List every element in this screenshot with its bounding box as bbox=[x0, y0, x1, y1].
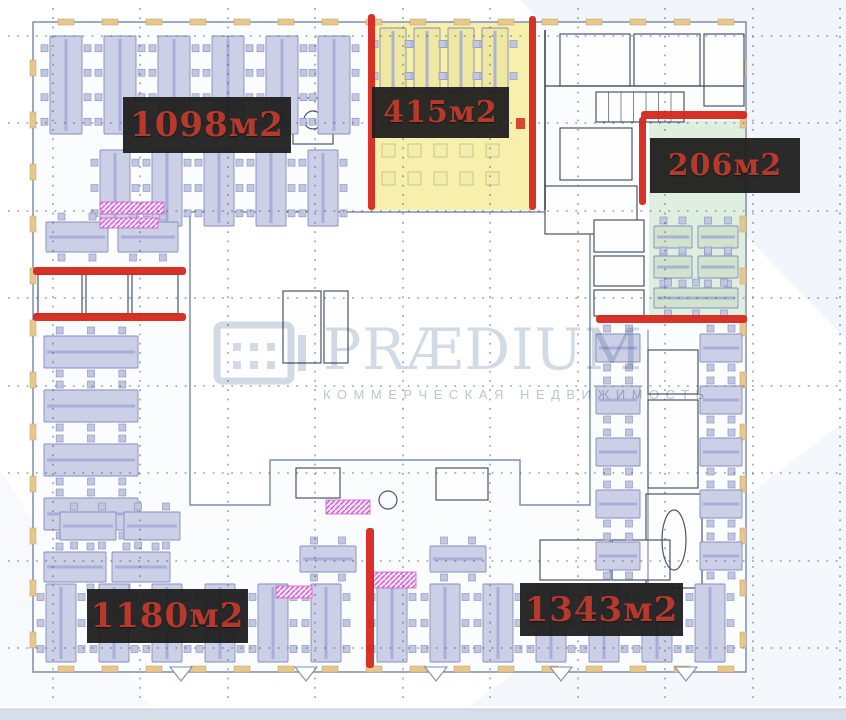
desk-cluster bbox=[195, 150, 243, 226]
area-label-415: 415м2 bbox=[372, 87, 509, 138]
area-label-1180: 1180м2 bbox=[87, 589, 248, 643]
zone-boundary-line bbox=[641, 111, 747, 119]
desk-cluster bbox=[247, 150, 295, 226]
zone-boundary-line bbox=[366, 528, 374, 668]
footer-strip bbox=[0, 709, 846, 720]
zone-boundary-line bbox=[33, 267, 186, 275]
desk-cluster bbox=[421, 584, 469, 662]
area-label-1343: 1343м2 bbox=[520, 583, 683, 636]
desk-cluster bbox=[143, 150, 191, 226]
floor-plan-page: PRÆDIUM КОММЕРЧЕСКАЯ НЕДВИЖИМОСТЬ 1098м2… bbox=[0, 0, 846, 720]
zone-boundary-line bbox=[529, 16, 536, 210]
zone-boundary-line bbox=[596, 315, 747, 323]
area-label-1098: 1098м2 bbox=[123, 97, 291, 153]
desk-cluster bbox=[37, 584, 85, 662]
zone-boundary-line bbox=[33, 313, 186, 321]
desk-cluster bbox=[299, 150, 347, 226]
desk-cluster bbox=[686, 584, 734, 662]
area-label-206: 206м2 bbox=[650, 138, 800, 193]
desk-cluster bbox=[368, 584, 416, 662]
desk-cluster bbox=[474, 584, 522, 662]
zone-boundary-line bbox=[639, 117, 646, 205]
